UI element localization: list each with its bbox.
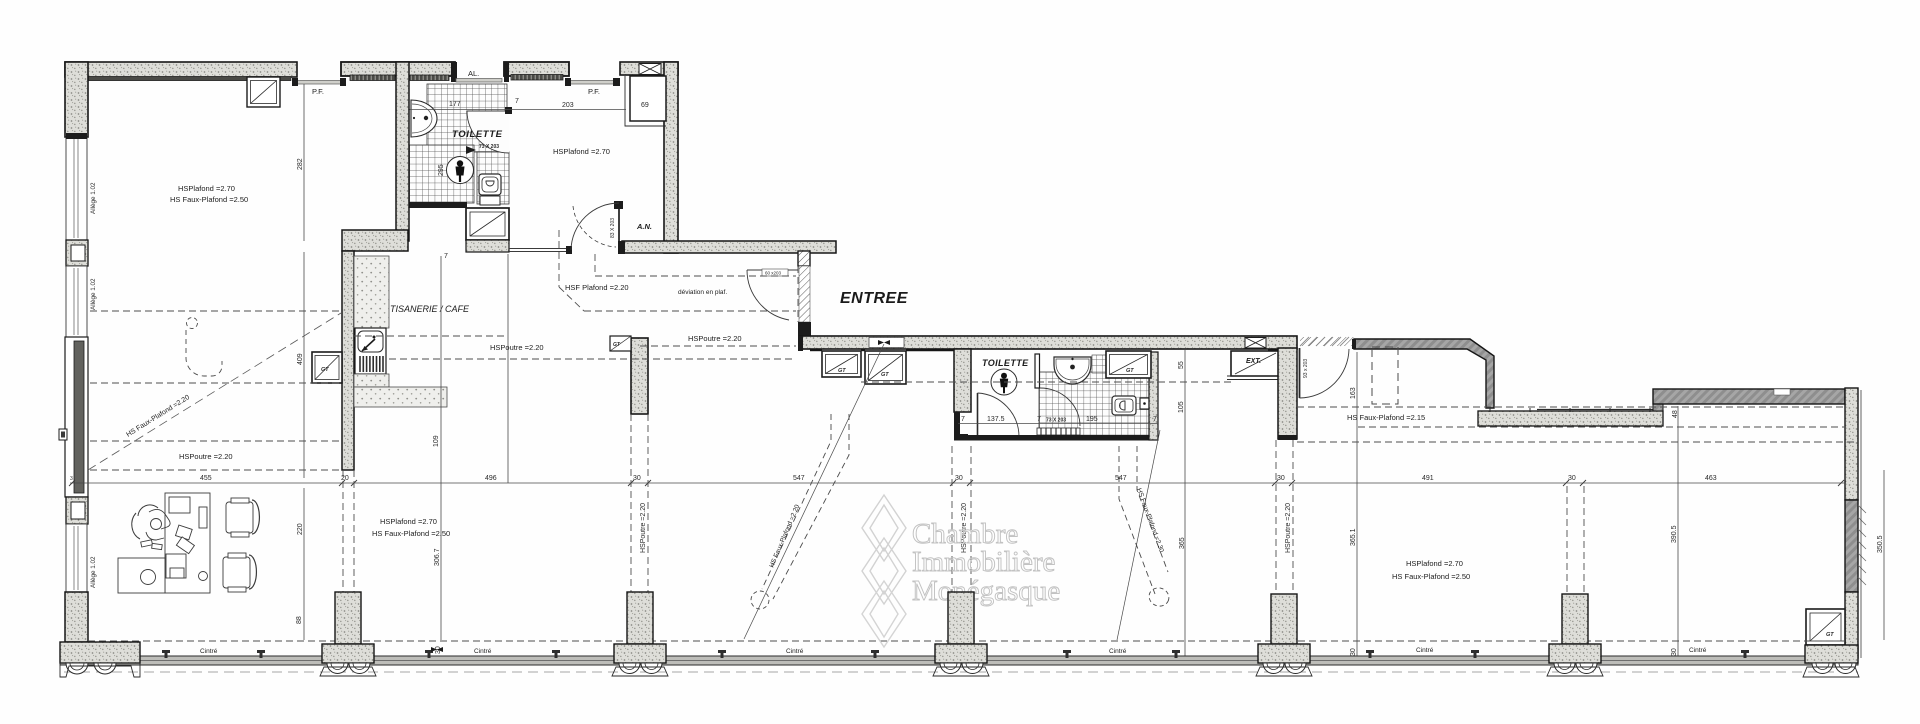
svg-text:EXT.: EXT. bbox=[1246, 358, 1261, 365]
svg-text:TISANERIE / CAFE: TISANERIE / CAFE bbox=[390, 304, 470, 314]
svg-text:73 X 203: 73 X 203 bbox=[479, 144, 499, 150]
svg-text:365.1: 365.1 bbox=[1350, 528, 1357, 546]
svg-text:Cintré: Cintré bbox=[474, 648, 492, 655]
svg-text:GT: GT bbox=[1826, 632, 1834, 638]
svg-text:GT: GT bbox=[613, 342, 621, 348]
svg-text:220: 220 bbox=[297, 523, 304, 535]
svg-text:547: 547 bbox=[793, 475, 805, 482]
svg-text:GT: GT bbox=[881, 372, 889, 378]
svg-text:Cintré: Cintré bbox=[200, 648, 218, 655]
svg-text:GT: GT bbox=[838, 368, 846, 374]
svg-text:463: 463 bbox=[1705, 475, 1717, 482]
svg-text:455: 455 bbox=[200, 475, 212, 482]
svg-text:30: 30 bbox=[633, 475, 641, 482]
svg-text:7: 7 bbox=[444, 253, 448, 260]
svg-text:7: 7 bbox=[1153, 416, 1157, 423]
svg-text:AL.: AL. bbox=[468, 69, 479, 78]
svg-text:P.F.: P.F. bbox=[588, 87, 600, 96]
svg-text:Allège 1.02: Allège 1.02 bbox=[90, 556, 97, 588]
svg-text:ENTREE: ENTREE bbox=[840, 290, 909, 307]
svg-text:88: 88 bbox=[296, 616, 303, 624]
svg-text:48: 48 bbox=[1672, 410, 1679, 418]
svg-text:TOILETTE: TOILETTE bbox=[452, 129, 503, 140]
svg-text:195: 195 bbox=[1086, 416, 1098, 423]
svg-text:491: 491 bbox=[1422, 475, 1434, 482]
svg-text:HSF Plafond =2.20: HSF Plafond =2.20 bbox=[565, 283, 629, 292]
svg-text:282: 282 bbox=[297, 158, 304, 170]
svg-text:390.5: 390.5 bbox=[1671, 525, 1678, 543]
svg-text:547: 547 bbox=[1115, 475, 1127, 482]
svg-text:177: 177 bbox=[449, 101, 461, 108]
svg-text:Cintré: Cintré bbox=[786, 648, 804, 655]
svg-text:30: 30 bbox=[1277, 475, 1285, 482]
svg-text:60 x203: 60 x203 bbox=[765, 271, 782, 276]
svg-text:350.5: 350.5 bbox=[1877, 535, 1884, 553]
svg-text:295: 295 bbox=[438, 164, 445, 176]
svg-text:306.7: 306.7 bbox=[434, 548, 441, 566]
svg-text:7: 7 bbox=[515, 98, 519, 105]
svg-text:HSPoutre =2.20: HSPoutre =2.20 bbox=[688, 334, 742, 343]
svg-text:7: 7 bbox=[1037, 416, 1041, 423]
svg-text:55: 55 bbox=[1178, 361, 1185, 369]
svg-text:P.F.: P.F. bbox=[312, 87, 324, 96]
svg-text:Allège 1.02: Allège 1.02 bbox=[90, 182, 97, 214]
svg-text:HSPlafond =2.70: HSPlafond =2.70 bbox=[1406, 559, 1463, 568]
svg-text:HSPlafond =2.70: HSPlafond =2.70 bbox=[380, 517, 437, 526]
svg-text:Cintré: Cintré bbox=[1416, 647, 1434, 654]
svg-text:Cintré: Cintré bbox=[1689, 647, 1707, 654]
svg-text:137.5: 137.5 bbox=[987, 416, 1005, 423]
svg-text:GT: GT bbox=[321, 367, 329, 373]
svg-text:HS Faux-Plafond =2.50: HS Faux-Plafond =2.50 bbox=[372, 529, 450, 538]
svg-text:HS Faux-Plafond =2.50: HS Faux-Plafond =2.50 bbox=[170, 195, 248, 204]
svg-text:105: 105 bbox=[1178, 401, 1185, 413]
svg-text:A.N.: A.N. bbox=[636, 222, 652, 231]
svg-text:20: 20 bbox=[341, 475, 349, 482]
svg-text:83 X 203: 83 X 203 bbox=[610, 218, 616, 238]
svg-text:Immobilière: Immobilière bbox=[912, 546, 1055, 578]
svg-text:HSPlafond =2.70: HSPlafond =2.70 bbox=[178, 184, 235, 193]
svg-text:HSPoutre =2.20: HSPoutre =2.20 bbox=[179, 452, 233, 461]
svg-text:HS Faux-Plafond =2.50: HS Faux-Plafond =2.50 bbox=[1392, 572, 1470, 581]
svg-text:HSPoutre =2.20: HSPoutre =2.20 bbox=[490, 343, 544, 352]
svg-text:409: 409 bbox=[297, 353, 304, 365]
svg-text:30: 30 bbox=[1350, 648, 1357, 656]
svg-text:GT: GT bbox=[1126, 368, 1134, 374]
svg-text:30: 30 bbox=[955, 475, 963, 482]
svg-text:73 X 203: 73 X 203 bbox=[1046, 418, 1066, 424]
svg-text:Cintré: Cintré bbox=[1109, 648, 1127, 655]
svg-text:Monégasque: Monégasque bbox=[912, 575, 1060, 607]
svg-text:TOILETTE: TOILETTE bbox=[982, 358, 1029, 368]
svg-text:496: 496 bbox=[485, 475, 497, 482]
svg-text:déviation en plaf.: déviation en plaf. bbox=[678, 289, 727, 296]
svg-text:HSPoutre =2.20: HSPoutre =2.20 bbox=[640, 503, 647, 553]
svg-text:203: 203 bbox=[562, 102, 574, 109]
svg-text:7: 7 bbox=[961, 416, 965, 423]
svg-text:HS Faux-Plafond =2.15: HS Faux-Plafond =2.15 bbox=[1347, 413, 1425, 422]
svg-text:109: 109 bbox=[433, 435, 440, 447]
svg-text:3: 3 bbox=[70, 476, 73, 482]
svg-text:HSPoutre =2.20: HSPoutre =2.20 bbox=[1285, 503, 1292, 553]
svg-text:69: 69 bbox=[641, 102, 649, 109]
svg-text:93 x 203: 93 x 203 bbox=[1303, 359, 1309, 378]
svg-text:30: 30 bbox=[1671, 648, 1678, 656]
svg-text:30: 30 bbox=[1568, 475, 1576, 482]
svg-text:365: 365 bbox=[1179, 537, 1186, 549]
svg-text:HSPlafond =2.70: HSPlafond =2.70 bbox=[553, 147, 610, 156]
svg-text:163: 163 bbox=[1350, 387, 1357, 399]
svg-text:Allège 1.02: Allège 1.02 bbox=[90, 278, 97, 310]
